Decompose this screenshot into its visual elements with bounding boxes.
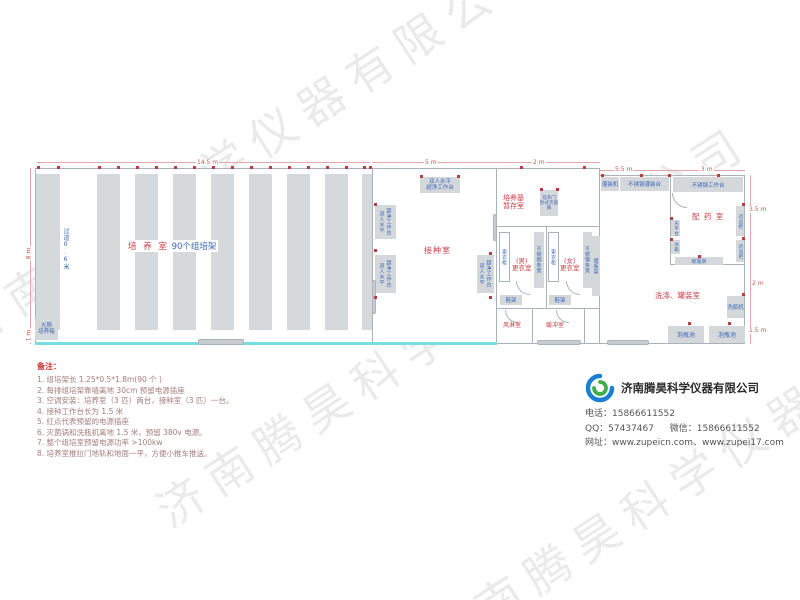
filling-machine-box: 灌装机 <box>601 177 619 191</box>
bottle-washer-box: 洗瓶机 <box>727 296 744 318</box>
clean-bench-top: 双人水平 超净工作台 <box>420 177 460 193</box>
power-socket-dot <box>374 203 377 206</box>
dim-washing-height: 2 m <box>751 280 765 287</box>
incubator-label-2: 培养箱 <box>38 329 55 335</box>
sterilizer-label-2: 卧式灭菌锅 <box>540 201 558 211</box>
power-socket-dot <box>489 252 492 255</box>
dim-pool-height: 1.5 m <box>748 327 767 334</box>
culture-rack <box>97 174 120 330</box>
note-item: 7. 整个组培室预留电源功率 >100kw <box>37 438 233 449</box>
culture-room <box>35 168 373 344</box>
culture-rack <box>362 174 372 330</box>
power-socket-dot <box>717 174 720 177</box>
clean-bench-left-2: 双人水平 超净工作台 <box>375 255 396 293</box>
culture-rack <box>211 174 234 330</box>
power-socket-dot <box>374 249 377 252</box>
buffer-room-label: 缓冲室 <box>546 320 564 329</box>
shoe-rack-men: 鞋架 <box>500 295 522 305</box>
dim-culture-height: 8 m <box>25 247 32 261</box>
shoe-rack-label: 鞋架 <box>554 296 565 304</box>
note-item: 6. 灭菌锅和洗瓶机离地 1.5 米，预留 380v 电源。 <box>37 428 233 439</box>
medicine-cabinet-label: 药品柜 <box>737 214 743 229</box>
bench-label: 双人水平 <box>479 263 486 285</box>
power-socket-dot <box>583 166 586 169</box>
note-item: 4. 接种工作台长为 1.5 米 <box>37 407 233 418</box>
power-socket-dot <box>742 237 745 240</box>
culture-rack <box>325 174 348 330</box>
light-incubator-box: 光照 培养箱 <box>35 318 58 340</box>
balance-table-label: 天平台 <box>673 221 679 236</box>
company-website: 网址：www.zupeicn.com、www.zupei17.com <box>585 436 785 451</box>
aisle-label: 过道0.6米 <box>61 228 70 270</box>
sliding-door-buffer <box>537 340 581 345</box>
note-item: 1. 组培架长 1.25*0.5*1.8m(90 个 ) <box>37 375 233 386</box>
inoculation-room-label: 接种室 <box>424 245 451 256</box>
power-socket-dot <box>37 166 40 169</box>
power-socket-dot <box>193 166 196 169</box>
power-socket-dot <box>688 322 691 325</box>
power-socket-dot <box>57 166 60 169</box>
company-block: 济南腾昊科学仪器有限公司 电话：15866611552 QQ：57437467 … <box>585 373 785 451</box>
power-socket-dot <box>345 166 348 169</box>
clean-bench-right: 双人水平 超净工作台 <box>477 255 494 293</box>
power-socket-dot <box>174 166 177 169</box>
bench-label: 双人水平 <box>379 263 386 285</box>
steel-bench-label: 不锈钢条凳 <box>536 246 543 274</box>
bench-label: 超净工作台 <box>386 260 393 288</box>
bottle-rack-label: 储瓶架 <box>593 258 600 275</box>
bench-label: 超净工作台 <box>386 208 393 236</box>
power-socket-dot <box>369 166 372 169</box>
storage-label-2: 暂存室 <box>503 202 524 210</box>
shoe-rack-women: 鞋架 <box>549 295 571 305</box>
filling-machine-label: 灌装机 <box>602 180 619 188</box>
medicine-cabinet-label: 药品柜 <box>737 244 743 259</box>
culture-rack <box>36 174 60 330</box>
power-socket-dot <box>288 166 291 169</box>
power-socket-dot <box>420 175 423 178</box>
culture-rack <box>173 174 196 330</box>
medicine-cabinet-2: 药品柜 <box>736 240 744 262</box>
dim-line-top <box>372 162 600 163</box>
dim-culture-width: 14.5 m <box>196 159 219 166</box>
floor-plan-canvas: 济南腾昊科学仪器有限公司济南腾昊科学仪器有限公司济南腾昊科学仪器有限公司 过道0… <box>0 0 800 600</box>
power-socket-dot <box>117 166 120 169</box>
dim-storage-width: 2 m <box>532 159 546 166</box>
door-leaf-right <box>493 214 497 241</box>
power-socket-dot <box>540 188 543 191</box>
culture-rack <box>287 174 310 330</box>
soaking-pool-1: 泡瓶池 <box>668 326 704 343</box>
filling-table-label: 不锈钢灌装台 <box>628 180 661 188</box>
power-socket-dot <box>742 203 745 206</box>
steel-bench-label: 不锈钢条凳 <box>584 246 591 274</box>
power-socket-dot <box>269 166 272 169</box>
culture-rack <box>135 174 158 330</box>
dim-pharmacy-width: 3 m <box>700 166 714 173</box>
notes-block: 备注： 1. 组培架长 1.25*0.5*1.8m(90 个 )2. 每排组培架… <box>37 361 233 459</box>
power-socket-dot <box>231 166 234 169</box>
culture-rack <box>249 174 272 330</box>
culture-rack-count-label: 90个组培架 <box>172 242 217 252</box>
steel-worktable-box: 不锈钢工作台 <box>673 177 743 192</box>
steel-bench-men: 不锈钢条凳 <box>534 232 544 288</box>
notes-title: 备注： <box>37 361 233 372</box>
power-socket-dot <box>326 166 329 169</box>
power-socket-dot <box>212 166 215 169</box>
company-logo-icon <box>585 373 615 403</box>
culture-room-name: 培 养 室 <box>128 242 169 252</box>
power-socket-dot <box>742 293 745 296</box>
women-changing-label: (女) 更衣室 <box>560 258 580 273</box>
storage-room-label: 培养基 暂存室 <box>503 194 524 210</box>
bench-label: 超净工作台 <box>426 185 454 191</box>
power-socket-dot <box>668 174 671 177</box>
dim-culture-lower: 1 m <box>25 329 32 343</box>
locker-label: 更衣柜 <box>501 249 508 266</box>
men-changing-label: (男) 更衣室 <box>512 258 532 273</box>
glass-front-wall <box>35 342 497 345</box>
soaking-pool-label: 泡瓶池 <box>718 330 736 339</box>
power-socket-dot <box>155 166 158 169</box>
note-item: 8. 培养室推拉门地轨和地面一平，方便小推车推送。 <box>37 449 233 460</box>
worktable-label: 不锈钢工作台 <box>691 181 724 189</box>
company-wechat: 微信：15866611552 <box>670 424 760 434</box>
power-socket-dot <box>556 188 559 191</box>
power-socket-dot <box>489 296 492 299</box>
clean-bench-left-1: 双人水平 超净工作台 <box>375 205 396 239</box>
power-socket-dot <box>363 166 366 169</box>
drying-rack-label: 晾瓶架 <box>691 258 706 265</box>
soaking-pool-label: 泡瓶池 <box>677 330 695 339</box>
fridge-label: 冰箱 <box>673 242 679 252</box>
filling-table-box: 不锈钢灌装台 <box>620 177 669 191</box>
company-qq: QQ：57437467 <box>585 424 654 434</box>
medicine-cabinet-1: 药品柜 <box>736 206 744 236</box>
power-socket-dot <box>457 175 460 178</box>
power-socket-dot <box>374 296 377 299</box>
women-label-2: 更衣室 <box>560 265 580 272</box>
dim-line-right <box>750 175 751 344</box>
power-socket-dot <box>136 166 139 169</box>
bench-label: 超净工作台 <box>486 260 493 288</box>
sliding-door-culture <box>198 339 244 345</box>
airshower-buffer-wall <box>532 308 533 344</box>
men-label-2: 更衣室 <box>512 265 532 272</box>
storage-label-1: 培养基 <box>503 194 524 202</box>
sliding-door-washing <box>607 340 649 345</box>
power-socket-dot <box>601 174 604 177</box>
soaking-pool-2: 泡瓶池 <box>709 326 745 343</box>
sterilizer-box: 双开门 卧式灭菌锅 <box>540 190 558 216</box>
buffer-right-wall <box>584 308 585 344</box>
pharmacy-room-label: 配 药 室 <box>692 211 724 222</box>
power-socket-dot <box>728 322 731 325</box>
bottle-washer-label: 洗瓶机 <box>727 303 744 311</box>
power-socket-dot <box>250 166 253 169</box>
notes-list: 1. 组培架长 1.25*0.5*1.8m(90 个 )2. 每排组培架靠墙离地… <box>37 375 233 459</box>
balance-table-box: 天平台 <box>671 220 680 236</box>
power-socket-dot <box>307 166 310 169</box>
locker-women: 更衣柜 <box>548 232 559 282</box>
culture-room-label: 培 养 室 90个组培架 <box>126 240 218 252</box>
dim-filling-width: 5.5 m <box>614 166 633 173</box>
steel-bench-women: 不锈钢条凳 <box>583 232 592 288</box>
company-phone: 电话：15866611552 <box>585 407 785 422</box>
changing-divider-wall <box>546 226 547 308</box>
fridge-box: 冰箱 <box>671 240 680 254</box>
power-socket-dot <box>698 255 701 258</box>
power-socket-dot <box>520 166 523 169</box>
shoe-rack-label: 鞋架 <box>505 296 516 304</box>
bottle-drying-rack-box: 晾瓶架 <box>675 257 723 265</box>
company-name: 济南腾昊科学仪器有限公司 <box>621 380 759 396</box>
air-shower-label: 风淋室 <box>503 320 521 329</box>
note-item: 3. 空调安装：培养室（3 匹）两台，接种室（3 匹）一台。 <box>37 396 233 407</box>
bench-label: 双人水平 <box>379 211 386 233</box>
power-socket-dot <box>670 217 673 220</box>
dim-pharmacy-height: 3.5 m <box>748 206 767 213</box>
note-item: 2. 每排组培架靠墙离地 30cm 预留电源插座 <box>37 386 233 397</box>
locker-label: 更衣柜 <box>550 249 557 266</box>
power-socket-dot <box>640 174 643 177</box>
note-item: 5. 红点代表预留的电源插座 <box>37 417 233 428</box>
bottle-storage-rack: 储瓶架 <box>592 236 600 296</box>
washing-room-label: 洗涤、罐装室 <box>655 290 700 301</box>
locker-men: 更衣柜 <box>499 232 510 282</box>
power-socket-dot <box>98 166 101 169</box>
storage-bottom-wall <box>496 226 600 227</box>
dim-inoculation-width: 5 m <box>424 159 438 166</box>
power-socket-dot <box>670 238 673 241</box>
